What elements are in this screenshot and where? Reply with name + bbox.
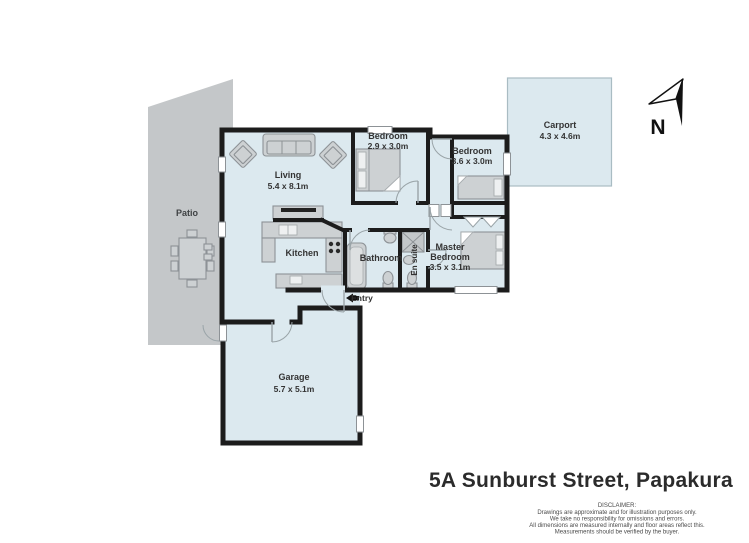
- tv-unit: [273, 206, 323, 219]
- kitchen-label: Kitchen: [285, 248, 318, 258]
- floor-plan: Entry N Living 5.4 x 8.1m Bedroom 2.9 x …: [0, 0, 749, 543]
- living-label: Living: [275, 170, 302, 180]
- patio-label: Patio: [176, 208, 199, 218]
- master-label-2: Bedroom: [430, 252, 470, 262]
- bed-single-bedroom2: [458, 176, 504, 199]
- bedroom1-label: Bedroom: [368, 131, 408, 141]
- ensuite-label: En suite: [410, 244, 419, 276]
- planter: [204, 254, 212, 260]
- disclaimer-line: Measurements should be verified by the b…: [555, 530, 680, 536]
- bedroom2-dims: 3.6 x 3.0m: [452, 156, 493, 166]
- bedroom1-dims: 2.9 x 3.0m: [368, 141, 409, 151]
- patio-table: [179, 238, 206, 279]
- garage-dims: 5.7 x 5.1m: [274, 384, 315, 394]
- garage-label: Garage: [278, 372, 309, 382]
- north-label: N: [650, 116, 665, 139]
- bathroom-toilet: [383, 272, 393, 290]
- master-dims: 3.5 x 3.1m: [430, 262, 471, 272]
- carport-dims: 4.3 x 4.6m: [540, 131, 581, 141]
- planter: [204, 244, 212, 250]
- floor-plan-page: Entry N Living 5.4 x 8.1m Bedroom 2.9 x …: [0, 0, 749, 543]
- bed-double-bedroom1: [356, 149, 400, 191]
- disclaimer-title: DISCLAIMER:: [598, 503, 637, 509]
- disclaimer-line: All dimensions are measured internally a…: [529, 523, 705, 529]
- bedroom2-label: Bedroom: [452, 146, 492, 156]
- living-dims: 5.4 x 8.1m: [268, 181, 309, 191]
- entry-label: Entry: [351, 293, 373, 303]
- disclaimer-line: We take no responsibility for omissions …: [550, 517, 685, 523]
- master-label-1: Master: [435, 242, 465, 252]
- carport-label: Carport: [544, 120, 577, 130]
- bathroom-label: Bathroom: [360, 253, 403, 263]
- property-address: 5A Sunburst Street, Papakura: [429, 469, 733, 492]
- sofa: [263, 134, 315, 156]
- disclaimer-line: Drawings are approximate and for illustr…: [537, 510, 697, 516]
